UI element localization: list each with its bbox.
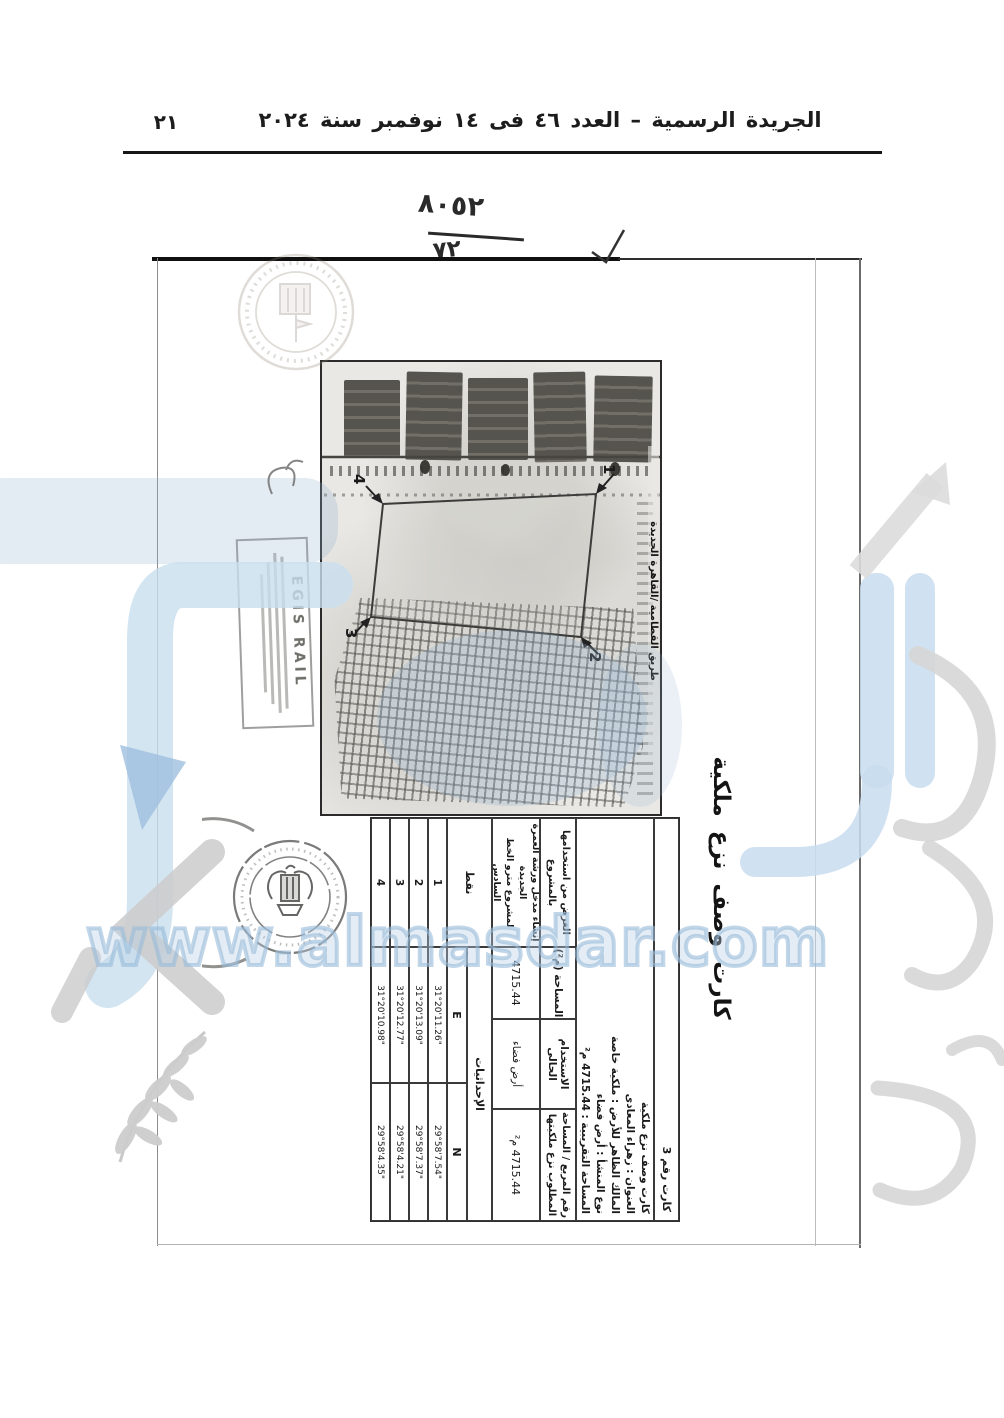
handwritten-check-mark — [592, 230, 624, 262]
gazette-page: الجريدة الرسمية – العدد ٤٦ فى ١٤ نوفمبر … — [0, 0, 1004, 1418]
watermark-tint-blob — [598, 643, 682, 807]
watermark-letter-right-bar — [860, 573, 894, 788]
calligraphy-swirl-gray — [878, 655, 1002, 1198]
watermark-tint-band — [0, 478, 338, 564]
watermark-letter-right-hook — [755, 780, 877, 862]
laurel-branch-icon — [111, 1032, 210, 1162]
watermark-url: www.almasdar.com — [86, 903, 830, 981]
watermark-shapes — [0, 0, 1004, 1418]
watermark-letter-right-bar — [905, 573, 935, 788]
